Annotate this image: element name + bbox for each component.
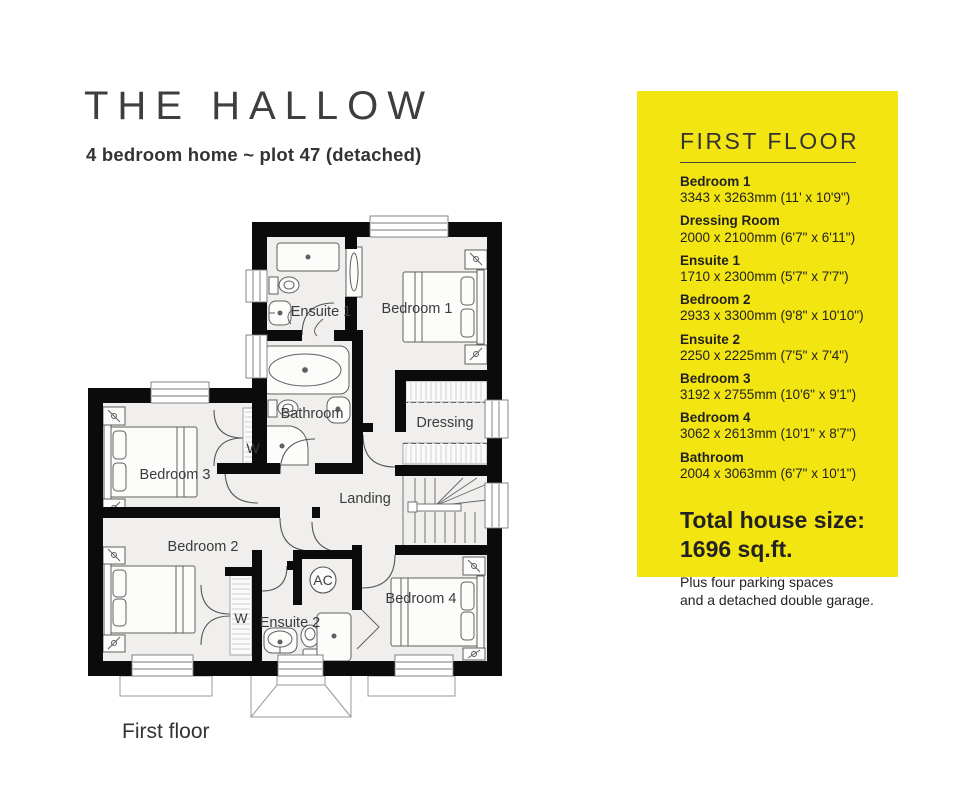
window — [370, 216, 448, 237]
room-label-bedroom1: Bedroom 1 — [382, 301, 453, 317]
room-label-bathroom: Bathroom — [281, 406, 344, 422]
room-label-dressing: Dressing — [416, 415, 473, 431]
room-name: Dressing Room — [680, 213, 880, 229]
window — [485, 483, 508, 528]
page-subtitle: 4 bedroom home ~ plot 47 (detached) — [86, 144, 421, 166]
window — [151, 382, 209, 403]
panel-rule — [680, 162, 856, 163]
room-name: Ensuite 2 — [680, 332, 880, 348]
ac-label: AC — [313, 572, 332, 588]
window — [246, 270, 267, 302]
room-dims: 3062 x 2613mm (10'1" x 8'7") — [680, 426, 880, 442]
basin-icon — [264, 628, 297, 653]
ac-unit: AC — [310, 567, 336, 593]
room-label-wardrobe1: W — [246, 440, 260, 456]
corner-shower-icon — [264, 426, 308, 465]
room-name: Bedroom 1 — [680, 174, 880, 190]
room-label-bedroom3: Bedroom 3 — [140, 467, 211, 483]
window — [278, 655, 323, 676]
room-dims: 2000 x 2100mm (6'7" x 6'11") — [680, 230, 880, 246]
panel-heading: FIRST FLOOR — [680, 128, 880, 155]
room-list: Bedroom 1 3343 x 3263mm (11' x 10'9") Dr… — [680, 174, 880, 482]
room-dims: 2933 x 3300mm (9'8" x 10'10") — [680, 308, 880, 324]
bathtub-icon — [261, 346, 349, 394]
room-dims: 3192 x 2755mm (10'6" x 9'1") — [680, 387, 880, 403]
list-item: Bedroom 4 3062 x 2613mm (10'1" x 8'7") — [680, 410, 880, 442]
roof-outlines — [120, 676, 455, 717]
room-label-wardrobe2: W — [234, 610, 248, 626]
list-item: Dressing Room 2000 x 2100mm (6'7" x 6'11… — [680, 213, 880, 245]
window — [395, 655, 453, 676]
list-item: Bedroom 3 3192 x 2755mm (10'6" x 9'1") — [680, 371, 880, 403]
room-label-bedroom4: Bedroom 4 — [386, 591, 457, 607]
window — [132, 655, 193, 676]
basin-icon — [269, 301, 291, 325]
room-label-bedroom2: Bedroom 2 — [168, 539, 239, 555]
page-title: THE HALLOW — [84, 84, 434, 129]
window — [485, 400, 508, 438]
plan-caption: First floor — [122, 720, 210, 743]
room-dims: 3343 x 3263mm (11' x 10'9") — [680, 190, 880, 206]
spec-panel: FIRST FLOOR Bedroom 1 3343 x 3263mm (11'… — [637, 91, 898, 577]
window — [246, 335, 267, 378]
room-name: Bedroom 2 — [680, 292, 880, 308]
list-item: Bedroom 1 3343 x 3263mm (11' x 10'9") — [680, 174, 880, 206]
parking-note: Plus four parking spaces and a detached … — [680, 573, 880, 609]
room-dims: 1710 x 2300mm (5'7" x 7'7") — [680, 269, 880, 285]
shower-icon — [317, 613, 351, 661]
list-item: Ensuite 2 2250 x 2225mm (7'5" x 7'4") — [680, 332, 880, 364]
room-dims: 2004 x 3063mm (6'7" x 10'1") — [680, 466, 880, 482]
list-item: Ensuite 1 1710 x 2300mm (5'7" x 7'7") — [680, 253, 880, 285]
room-label-landing: Landing — [339, 491, 391, 507]
list-item: Bathroom 2004 x 3063mm (6'7" x 10'1") — [680, 450, 880, 482]
floor-plan: AC Bedroom 1 Ensuite 1 Bathroom Dressing… — [65, 195, 510, 745]
shower-icon — [277, 243, 339, 271]
room-name: Bathroom — [680, 450, 880, 466]
room-dims: 2250 x 2225mm (7'5" x 7'4") — [680, 348, 880, 364]
shower-screen-icon — [346, 247, 362, 297]
room-name: Ensuite 1 — [680, 253, 880, 269]
list-item: Bedroom 2 2933 x 3300mm (9'8" x 10'10") — [680, 292, 880, 324]
room-name: Bedroom 4 — [680, 410, 880, 426]
room-name: Bedroom 3 — [680, 371, 880, 387]
room-label-ensuite2: Ensuite 2 — [260, 615, 320, 631]
total-house-size: Total house size: 1696 sq.ft. — [680, 506, 880, 564]
room-label-ensuite1: Ensuite 1 — [291, 304, 351, 320]
toilet-icon — [269, 277, 299, 294]
